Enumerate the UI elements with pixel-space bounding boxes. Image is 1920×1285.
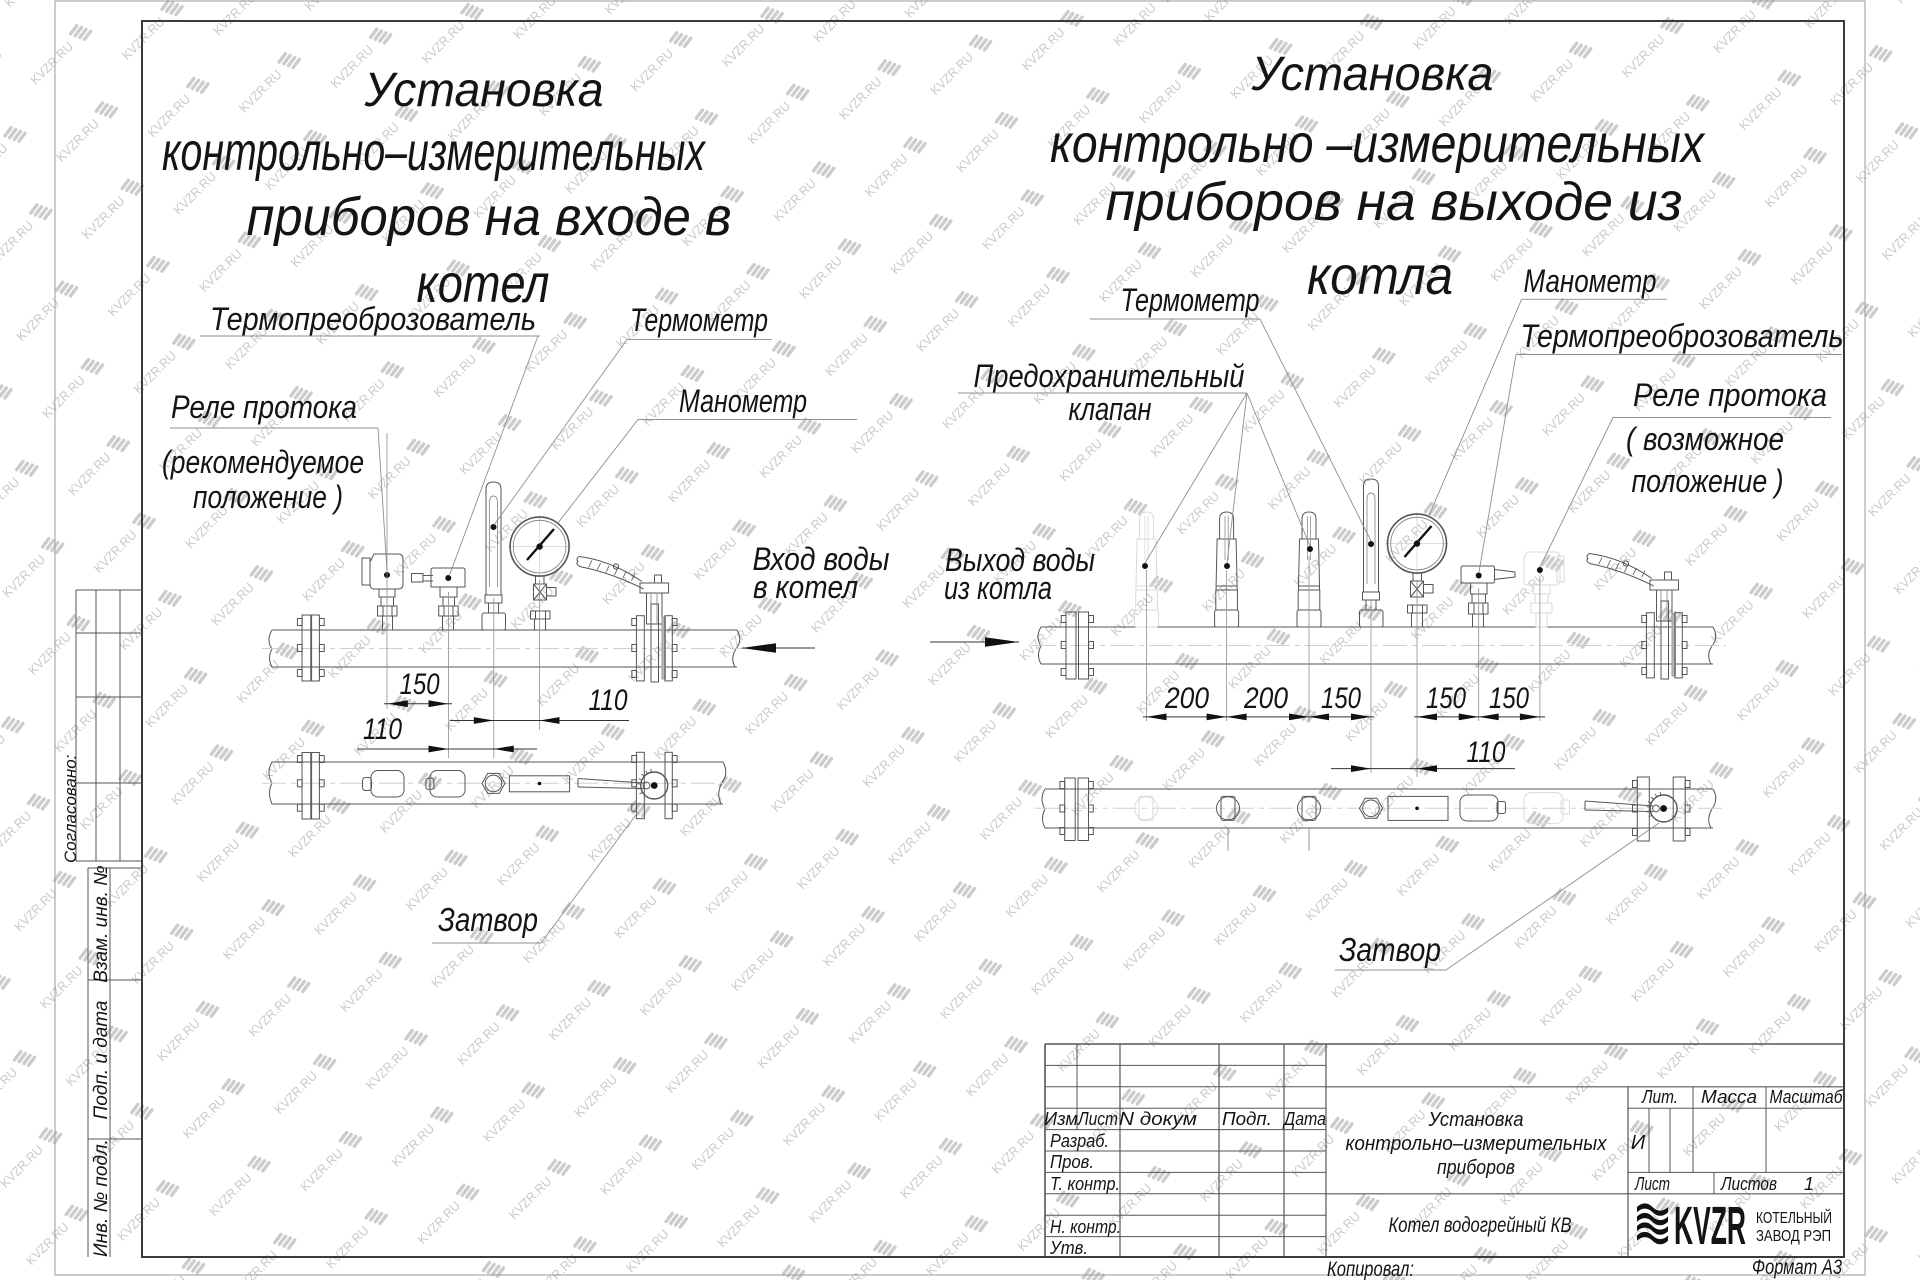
svg-text:контрольно–измерительных: контрольно–измерительных [1346,1133,1608,1155]
svg-text:150: 150 [1489,682,1529,715]
svg-text:И: И [1631,1132,1646,1154]
svg-text:110: 110 [363,713,402,746]
svg-text:Н. контр.: Н. контр. [1050,1217,1121,1237]
svg-text:ЗАВОД РЭП: ЗАВОД РЭП [1756,1228,1831,1245]
svg-text:контрольно–измерительных: контрольно–измерительных [162,122,706,182]
svg-text:Установка: Установка [1251,48,1494,101]
svg-text:Установка: Установка [1428,1109,1524,1131]
svg-text:150: 150 [1426,682,1466,715]
svg-text:КОТЕЛЬНЫЙ: КОТЕЛЬНЫЙ [1756,1209,1832,1227]
svg-text:Реле протока: Реле протока [1633,377,1827,413]
svg-text:приборов на входе в: приборов на входе в [247,187,732,247]
svg-text:в котел: в котел [753,569,858,605]
svg-text:Изм: Изм [1044,1109,1078,1129]
svg-text:Термометр: Термометр [1121,282,1260,318]
svg-text:150: 150 [400,668,440,701]
svg-text:Котел водогрейный КВ: Котел водогрейный КВ [1389,1214,1572,1237]
svg-text:Листов: Листов [1720,1174,1777,1194]
svg-text:Взам. инв. №: Взам. инв. № [91,865,112,983]
svg-text:Лист: Лист [1634,1174,1670,1194]
svg-text:Формат А3: Формат А3 [1752,1256,1842,1279]
svg-text:приборов на выходе из: приборов на выходе из [1106,172,1683,232]
svg-text:Манометр: Манометр [679,383,807,419]
svg-text:Подп.: Подп. [1222,1109,1272,1129]
svg-text:клапан: клапан [1069,391,1152,427]
svg-text:котла: котла [1307,246,1453,306]
svg-text:Затвор: Затвор [438,901,538,938]
svg-text:KVZR: KVZR [1674,1196,1746,1256]
svg-text:Пров.: Пров. [1050,1152,1094,1172]
svg-text:Термопреоброзователь: Термопреоброзователь [210,301,536,337]
svg-text:из котла: из котла [944,570,1052,606]
svg-text:1: 1 [1804,1174,1814,1194]
svg-text:Копировал:: Копировал: [1327,1258,1414,1280]
svg-text:Разраб.: Разраб. [1050,1131,1109,1151]
svg-text:контрольно –измерительных: контрольно –измерительных [1050,114,1706,174]
svg-text:Лист: Лист [1077,1109,1118,1129]
svg-text:200: 200 [1164,682,1209,715]
svg-text:Утв.: Утв. [1049,1238,1088,1258]
svg-text:( возможное: ( возможное [1626,421,1784,457]
svg-text:Термометр: Термометр [630,302,768,338]
svg-text:Установка: Установка [364,64,604,117]
svg-text:110: 110 [1467,736,1506,769]
svg-text:Масса: Масса [1701,1087,1757,1107]
svg-text:Манометр: Манометр [1524,263,1657,299]
svg-text:Согласовано:: Согласовано: [61,754,80,863]
svg-text:200: 200 [1243,682,1288,715]
svg-text:приборов: приборов [1437,1157,1515,1179]
svg-text:Реле протока: Реле протока [171,389,357,425]
svg-text:положение ): положение ) [1632,463,1784,499]
svg-text:Предохранительный: Предохранительный [974,358,1245,394]
svg-text:Лит.: Лит. [1641,1087,1678,1107]
svg-text:Подп. и дата: Подп. и дата [91,1001,112,1120]
svg-text:(рекомендуемое: (рекомендуемое [162,444,364,480]
svg-text:Масштаб: Масштаб [1770,1087,1844,1107]
svg-text:110: 110 [589,684,628,717]
svg-text:положение ): положение ) [193,479,343,515]
svg-text:Затвор: Затвор [1339,931,1441,968]
svg-text:Инв. № подл.: Инв. № подл. [91,1139,112,1257]
svg-text:Термопреоброзователь: Термопреоброзователь [1521,318,1844,354]
svg-text:150: 150 [1321,682,1361,715]
svg-text:N докум: N докум [1119,1109,1197,1129]
svg-text:Дата: Дата [1282,1109,1326,1129]
svg-text:Т. контр.: Т. контр. [1050,1174,1120,1194]
